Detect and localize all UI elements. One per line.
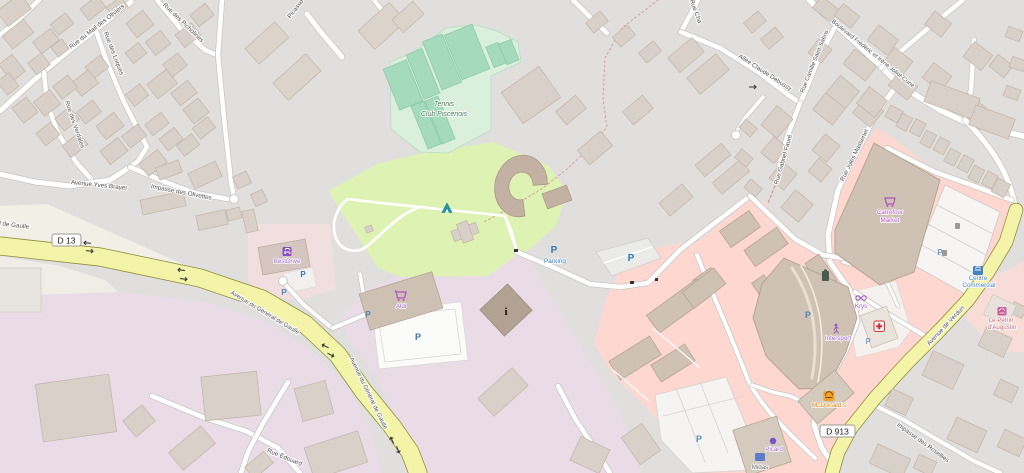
svg-text:Picard: Picard — [765, 446, 783, 453]
svg-text:i: i — [504, 306, 507, 318]
svg-text:Parking: Parking — [544, 258, 566, 265]
svg-text:McDonald's: McDonald's — [812, 402, 847, 409]
svg-text:Intersport: Intersport — [825, 335, 851, 342]
svg-text:Club Piscenois: Club Piscenois — [421, 111, 468, 118]
svg-text:Midas: Midas — [752, 464, 769, 471]
svg-text:P: P — [865, 337, 871, 346]
svg-text:Centre: Centre — [969, 275, 988, 282]
svg-text:P: P — [805, 310, 811, 320]
svg-text:P: P — [365, 310, 371, 319]
svg-text:BestDrive: BestDrive — [274, 258, 301, 265]
svg-text:Market: Market — [881, 217, 900, 224]
svg-text:D 13: D 13 — [58, 236, 76, 246]
svg-text:Commercial: Commercial — [962, 282, 995, 289]
svg-text:P: P — [551, 245, 558, 256]
svg-text:Carrefour: Carrefour — [877, 209, 903, 216]
svg-text:Aldi: Aldi — [396, 303, 406, 310]
svg-text:Tennis: Tennis — [434, 101, 455, 108]
svg-text:P: P — [696, 434, 702, 444]
svg-text:P: P — [281, 288, 287, 297]
svg-text:P: P — [415, 332, 421, 342]
svg-text:P: P — [628, 253, 635, 264]
svg-text:Le Pétrin: Le Pétrin — [989, 317, 1014, 324]
svg-text:Krys: Krys — [855, 303, 867, 310]
svg-text:D 913: D 913 — [826, 427, 849, 437]
svg-text:d'Augustin: d'Augustin — [988, 324, 1017, 331]
svg-text:P: P — [300, 270, 306, 279]
